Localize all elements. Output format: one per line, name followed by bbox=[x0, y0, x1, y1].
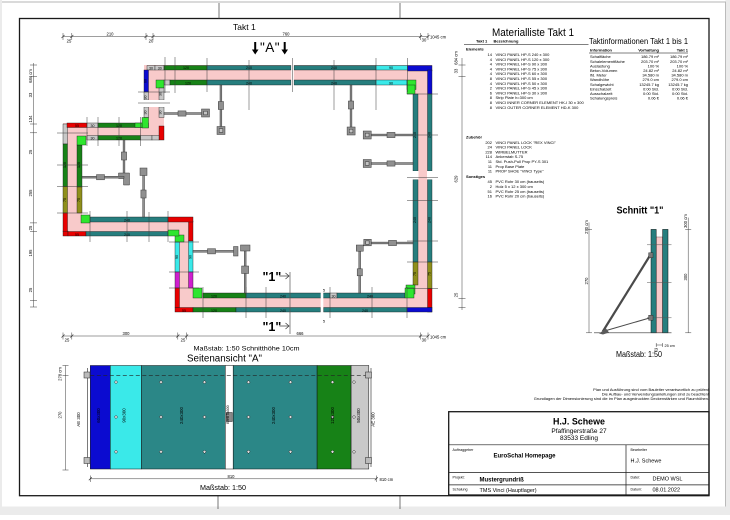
svg-text:240: 240 bbox=[362, 309, 368, 313]
svg-text:55: 55 bbox=[75, 233, 79, 237]
svg-text:240: 240 bbox=[428, 217, 432, 223]
svg-text:300 cm: 300 cm bbox=[683, 214, 688, 228]
svg-text:Bezeichnung: Bezeichnung bbox=[494, 39, 519, 44]
svg-text:Schalungspreis: Schalungspreis bbox=[590, 96, 617, 101]
svg-text:Zubehör: Zubehör bbox=[466, 135, 482, 140]
svg-text:30: 30 bbox=[144, 111, 148, 115]
svg-text:50x300: 50x300 bbox=[356, 408, 361, 423]
svg-text:1045 cm: 1045 cm bbox=[430, 34, 447, 39]
svg-text:Pfaffingerstraße 27: Pfaffingerstraße 27 bbox=[551, 428, 607, 435]
svg-text:255: 255 bbox=[28, 189, 33, 197]
svg-text:TMS Vinci (Hauptlager): TMS Vinci (Hauptlager) bbox=[480, 488, 537, 494]
svg-text:240x300: 240x300 bbox=[179, 407, 184, 424]
svg-text:25: 25 bbox=[28, 225, 33, 230]
svg-text:75: 75 bbox=[77, 198, 81, 202]
svg-text:240x300: 240x300 bbox=[271, 407, 276, 424]
svg-text:AE 300: AE 300 bbox=[371, 412, 376, 427]
svg-text:120: 120 bbox=[211, 295, 217, 299]
svg-text:Projekt:: Projekt: bbox=[453, 476, 465, 480]
svg-text:120: 120 bbox=[211, 309, 217, 313]
svg-text:90: 90 bbox=[189, 255, 193, 259]
svg-text:270: 270 bbox=[584, 277, 589, 285]
svg-text:VINCI OUTER CORNER ELEMENT HD-: VINCI OUTER CORNER ELEMENT HD-K 300 bbox=[496, 105, 580, 110]
svg-text:300: 300 bbox=[683, 273, 688, 281]
svg-text:16: 16 bbox=[488, 194, 493, 199]
svg-text:33: 33 bbox=[454, 68, 459, 73]
svg-text:Materialliste Takt 1: Materialliste Takt 1 bbox=[492, 27, 574, 39]
svg-text:Takt 1: Takt 1 bbox=[233, 22, 256, 32]
svg-text:134: 134 bbox=[28, 115, 33, 123]
svg-text:Brett 5x300: Brett 5x300 bbox=[226, 405, 230, 423]
svg-text:EuroSchal Homepage: EuroSchal Homepage bbox=[494, 454, 557, 460]
svg-text:0.06 €: 0.06 € bbox=[648, 96, 660, 101]
svg-text:75: 75 bbox=[413, 272, 417, 276]
svg-text:25: 25 bbox=[181, 338, 186, 343]
svg-text:Datei:: Datei: bbox=[631, 476, 640, 480]
svg-text:PVC Rohr 20 cm (bauseits): PVC Rohr 20 cm (bauseits) bbox=[496, 194, 545, 199]
svg-text:08.01.2022: 08.01.2022 bbox=[653, 488, 681, 494]
svg-text:25: 25 bbox=[65, 338, 70, 343]
svg-text:270 cm: 270 cm bbox=[584, 220, 589, 234]
svg-text:"1": "1" bbox=[263, 270, 282, 284]
svg-text:25: 25 bbox=[67, 39, 72, 44]
svg-text:Schalung: Schalung bbox=[453, 488, 468, 492]
svg-text:"1": "1" bbox=[263, 320, 282, 334]
svg-text:Maßstab: 1:50 Schnitthöhe: Maßstab: 1:50 Schnitthöhe 10cm bbox=[194, 346, 300, 353]
svg-text:30: 30 bbox=[159, 92, 163, 96]
svg-text:25 cm: 25 cm bbox=[665, 344, 675, 348]
svg-text:Bearbeiter: Bearbeiter bbox=[631, 448, 648, 452]
svg-text:240: 240 bbox=[280, 295, 286, 299]
svg-text:210: 210 bbox=[107, 32, 115, 37]
svg-text:270: 270 bbox=[57, 411, 62, 419]
svg-text:20: 20 bbox=[149, 39, 154, 44]
svg-text:278 cm: 278 cm bbox=[57, 367, 62, 381]
svg-text:30: 30 bbox=[422, 338, 427, 343]
svg-text:75: 75 bbox=[63, 198, 67, 202]
svg-text:AE 300: AE 300 bbox=[76, 412, 81, 427]
svg-text:Taktinformationen Takt 1 bis: Taktinformationen Takt 1 bis 1 bbox=[589, 36, 688, 46]
svg-text:195: 195 bbox=[28, 249, 33, 257]
svg-text:30: 30 bbox=[144, 96, 148, 100]
svg-text:75: 75 bbox=[428, 272, 432, 276]
svg-text:90: 90 bbox=[389, 81, 393, 85]
svg-text:60x300: 60x300 bbox=[96, 408, 101, 423]
svg-text:684 cm: 684 cm bbox=[28, 69, 33, 83]
svg-text:Grundlagen der Dimensionierung: Grundlagen der Dimensionierung sind die … bbox=[534, 396, 709, 401]
svg-text:25: 25 bbox=[28, 287, 33, 292]
svg-text:Takt 1: Takt 1 bbox=[476, 39, 488, 44]
svg-text:Schnitt "1": Schnitt "1" bbox=[617, 206, 664, 217]
svg-text:Mustergrundriß: Mustergrundriß bbox=[480, 477, 525, 483]
svg-text:810: 810 bbox=[228, 474, 236, 479]
svg-text:240: 240 bbox=[413, 217, 417, 223]
svg-text:60: 60 bbox=[144, 79, 148, 83]
svg-text:33: 33 bbox=[28, 92, 33, 97]
svg-text:Seitenansicht "A": Seitenansicht "A" bbox=[187, 354, 262, 365]
svg-text:90: 90 bbox=[389, 66, 393, 70]
svg-text:30: 30 bbox=[332, 295, 336, 299]
svg-text:120: 120 bbox=[185, 81, 191, 85]
svg-text:684 cm: 684 cm bbox=[454, 51, 459, 65]
svg-text:Maßstab: 1:50: Maßstab: 1:50 bbox=[616, 350, 662, 359]
svg-text:810 cm: 810 cm bbox=[380, 477, 394, 482]
svg-text:30: 30 bbox=[159, 111, 163, 115]
svg-text:240: 240 bbox=[280, 309, 286, 313]
svg-text:30: 30 bbox=[91, 136, 95, 140]
svg-text:30: 30 bbox=[422, 38, 427, 43]
svg-text:Takt 1: Takt 1 bbox=[677, 48, 689, 53]
svg-text:90x300: 90x300 bbox=[122, 408, 127, 423]
svg-text:300: 300 bbox=[123, 331, 131, 336]
svg-text:83533 Edling: 83533 Edling bbox=[560, 435, 598, 442]
svg-text:"A": "A" bbox=[260, 40, 280, 55]
svg-text:30: 30 bbox=[91, 124, 95, 128]
svg-text:PROP SHOE "VINCI Type": PROP SHOE "VINCI Type" bbox=[496, 169, 545, 174]
svg-text:Vorhaltung: Vorhaltung bbox=[638, 48, 659, 53]
svg-text:Datum:: Datum: bbox=[631, 488, 643, 492]
svg-text:Auftraggeber: Auftraggeber bbox=[453, 448, 475, 452]
svg-text:1045 cm: 1045 cm bbox=[430, 335, 447, 340]
svg-text:Elemente: Elemente bbox=[466, 47, 485, 52]
svg-text:30: 30 bbox=[158, 66, 162, 70]
svg-text:25: 25 bbox=[454, 292, 459, 297]
svg-text:629: 629 bbox=[454, 175, 459, 183]
svg-text:120x300: 120x300 bbox=[330, 407, 335, 424]
svg-text:30: 30 bbox=[149, 66, 153, 70]
svg-text:90: 90 bbox=[175, 255, 179, 259]
svg-text:666: 666 bbox=[297, 331, 305, 336]
svg-text:0.06 €: 0.06 € bbox=[677, 96, 689, 101]
svg-text:Information: Information bbox=[590, 48, 613, 53]
svg-text:55: 55 bbox=[75, 124, 79, 128]
svg-text:H.J. Schewe: H.J. Schewe bbox=[553, 417, 605, 427]
svg-text:25: 25 bbox=[28, 149, 33, 154]
svg-text:H.J. Schewe: H.J. Schewe bbox=[631, 459, 662, 465]
svg-text:120: 120 bbox=[183, 66, 189, 70]
svg-text:DEMO WSL: DEMO WSL bbox=[653, 477, 683, 483]
svg-text:55: 55 bbox=[182, 309, 186, 313]
svg-text:Sonstiges: Sonstiges bbox=[466, 174, 486, 179]
svg-text:Maßstab: 1:50: Maßstab: 1:50 bbox=[200, 485, 246, 492]
svg-text:760: 760 bbox=[283, 32, 291, 37]
